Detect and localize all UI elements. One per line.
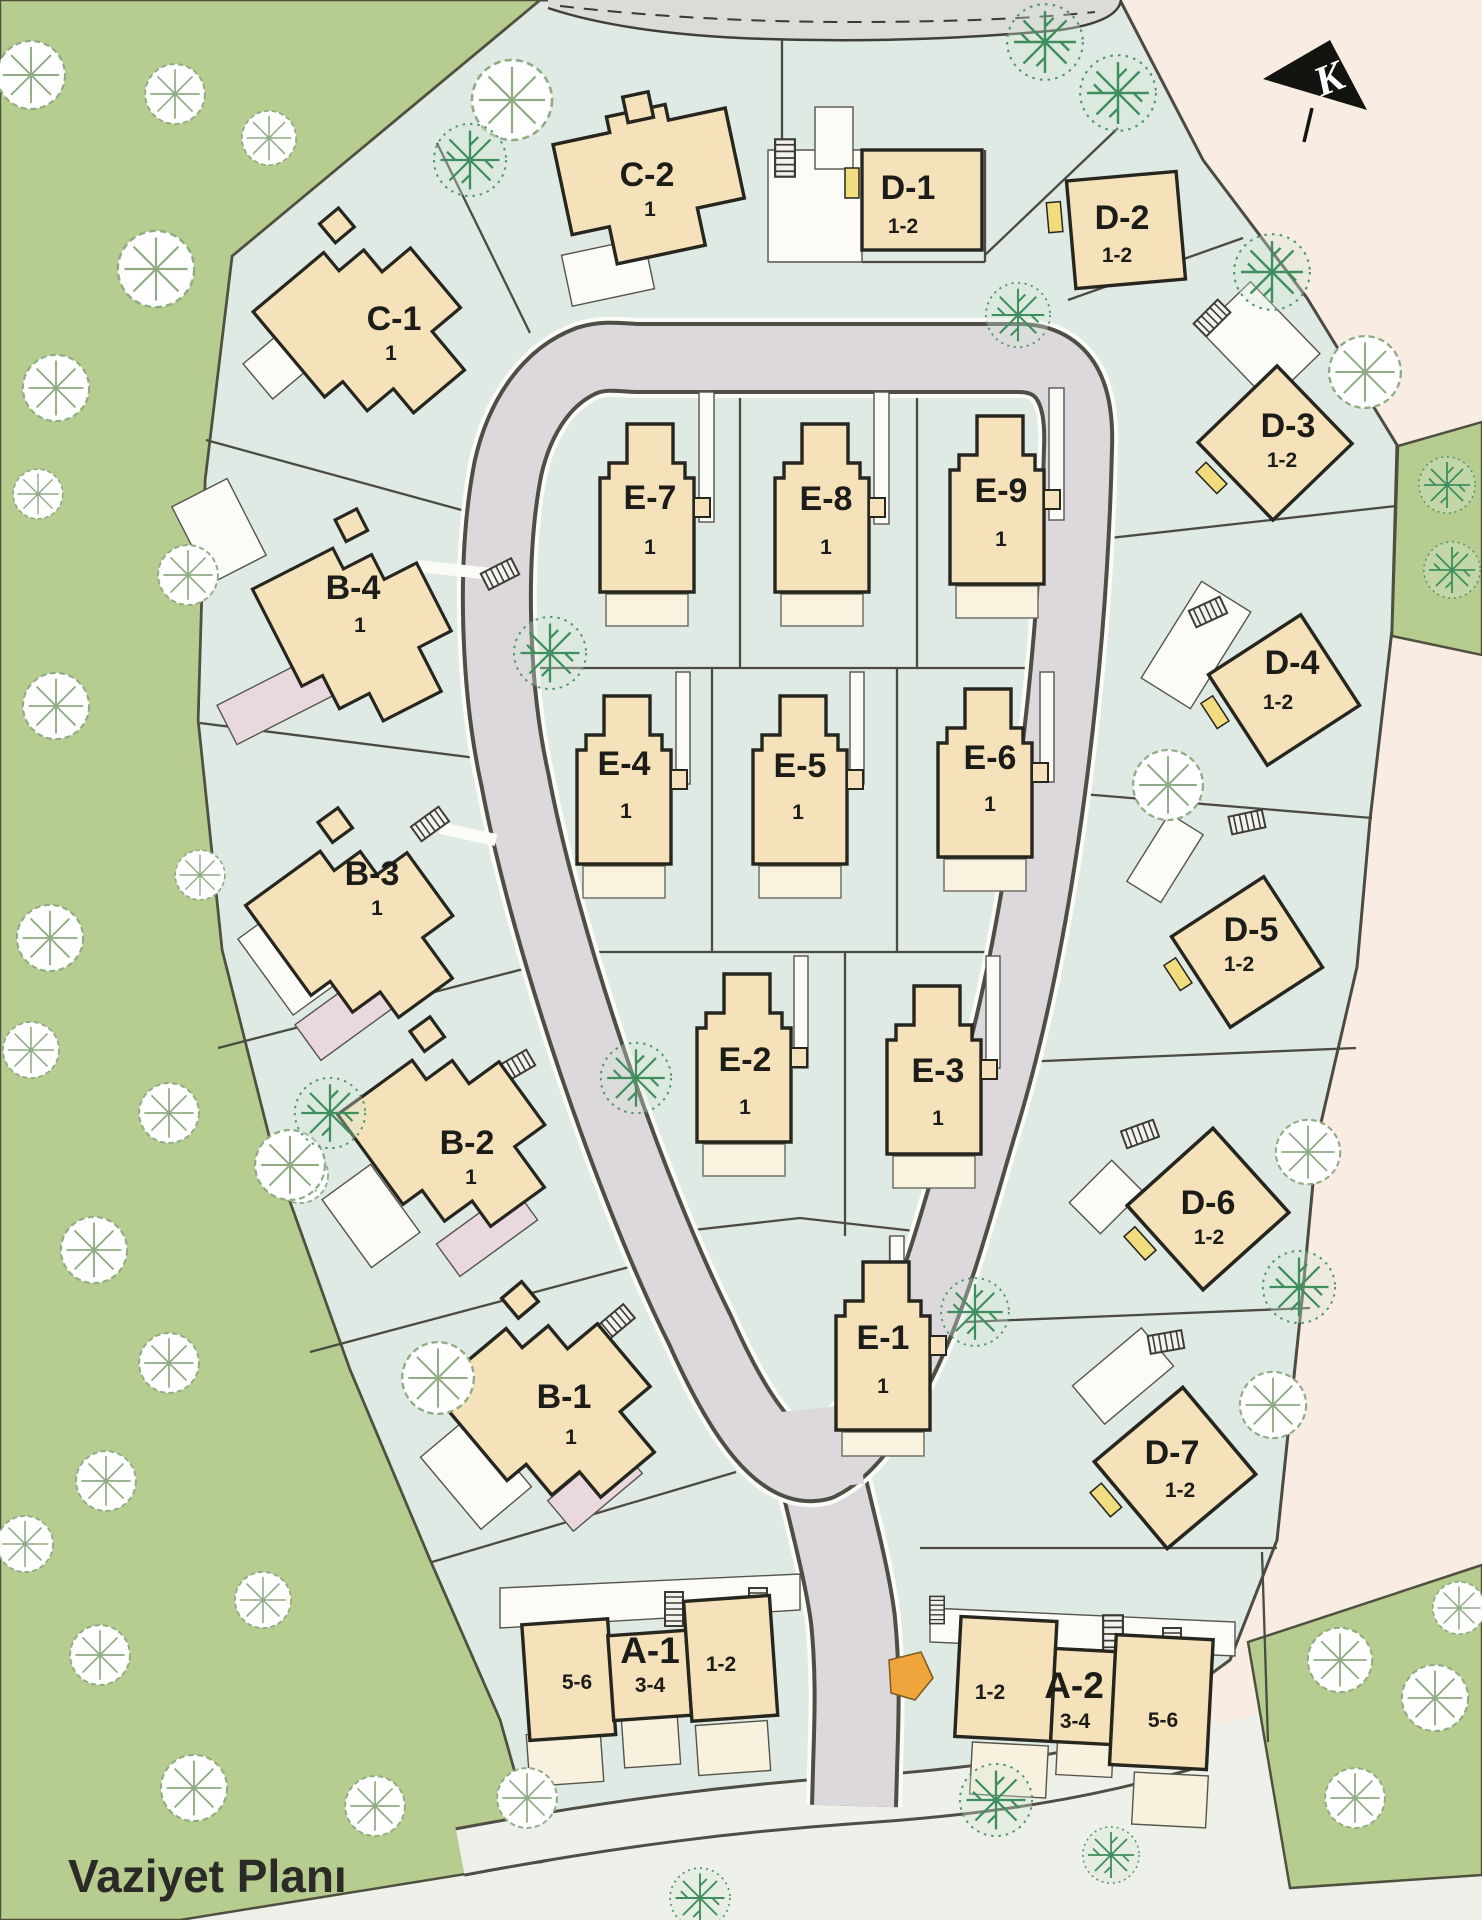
label-b3: B-3: [345, 855, 400, 893]
tree-icon: [3, 1022, 59, 1078]
tree-icon: [1424, 542, 1480, 598]
tree-icon: [1083, 1827, 1139, 1883]
garage-d1: [815, 107, 853, 169]
tree-icon: [145, 64, 205, 124]
unit-c1: 1: [385, 342, 397, 365]
unit-e5: 1: [792, 801, 804, 824]
tree-icon: [1263, 1251, 1335, 1323]
tree-icon: [1234, 234, 1310, 310]
label-e5: E-5: [774, 747, 827, 785]
tree-icon: [1308, 1628, 1372, 1692]
unit-d6: 1-2: [1194, 1226, 1224, 1249]
label-b1: B-1: [537, 1378, 592, 1416]
unit-e6: 1: [984, 793, 996, 816]
label-e1: E-1: [857, 1319, 910, 1357]
tree-icon: [601, 1043, 671, 1113]
label-d4: D-4: [1265, 644, 1320, 682]
label-a1: A-1: [620, 1630, 680, 1671]
tree-icon: [1276, 1120, 1340, 1184]
tree-icon: [1325, 1768, 1385, 1828]
unit-a1-right: 1-2: [706, 1653, 736, 1676]
label-e3: E-3: [912, 1052, 965, 1090]
tree-icon: [70, 1625, 130, 1685]
label-d5: D-5: [1224, 911, 1279, 949]
label-c2: C-2: [620, 156, 675, 194]
tree-icon: [1240, 1372, 1306, 1438]
unit-a2-right: 5-6: [1148, 1709, 1178, 1732]
unit-e2: 1: [739, 1096, 751, 1119]
tree-icon: [1402, 1665, 1468, 1731]
unit-e9: 1: [995, 528, 1007, 551]
unit-d3: 1-2: [1267, 449, 1297, 472]
park-right-small: [1392, 422, 1482, 655]
label-e9: E-9: [975, 472, 1028, 510]
unit-b2: 1: [465, 1166, 477, 1189]
tree-icon: [345, 1776, 405, 1836]
tree-icon: [1080, 55, 1156, 131]
stairs-icon: [930, 1596, 944, 1623]
label-d1: D-1: [881, 169, 936, 207]
unit-a1-left: 5-6: [562, 1671, 592, 1694]
unit-e7: 1: [644, 536, 656, 559]
unit-d7: 1-2: [1165, 1479, 1195, 1502]
unit-a2-mid: 3-4: [1060, 1710, 1091, 1733]
label-e8: E-8: [800, 480, 853, 518]
label-a2: A-2: [1044, 1665, 1104, 1706]
stairs-icon: [665, 1592, 683, 1626]
stem-road: [820, 1468, 857, 1806]
unit-d2: 1-2: [1102, 244, 1132, 267]
tree-icon: [175, 850, 225, 900]
label-d7: D-7: [1145, 1434, 1200, 1472]
label-e2: E-2: [719, 1041, 772, 1079]
tree-icon: [1329, 336, 1401, 408]
tree-icon: [1007, 4, 1083, 80]
unit-d4: 1-2: [1263, 691, 1293, 714]
site-plan-page: C-1 1 C-2 1 B-4 1 B-3 1 B-2 1 B-1 1 D-1 …: [0, 0, 1482, 1920]
site-plan-drawing: C-1 1 C-2 1 B-4 1 B-3 1 B-2 1 B-1 1 D-1 …: [0, 0, 1482, 1920]
unit-d5: 1-2: [1224, 953, 1254, 976]
label-c1: C-1: [367, 300, 422, 338]
tree-icon: [23, 355, 89, 421]
tree-icon: [242, 111, 296, 165]
stairs-icon: [775, 139, 795, 176]
tree-icon: [139, 1083, 199, 1143]
tree-icon: [514, 617, 586, 689]
label-e6: E-6: [964, 739, 1017, 777]
label-d6: D-6: [1181, 1184, 1236, 1222]
tree-icon: [235, 1572, 291, 1628]
tree-icon: [118, 231, 194, 307]
tree-icon: [0, 41, 65, 109]
tree-icon: [61, 1217, 127, 1283]
unit-e1: 1: [877, 1375, 889, 1398]
tree-icon: [13, 469, 63, 519]
unit-e8: 1: [820, 536, 832, 559]
unit-b4: 1: [354, 614, 366, 637]
page-title: Vaziyet Planı: [68, 1850, 347, 1902]
unit-b1: 1: [565, 1426, 577, 1449]
tree-icon: [1419, 457, 1475, 513]
tree-icon: [139, 1333, 199, 1393]
label-d2: D-2: [1095, 199, 1150, 237]
label-d3: D-3: [1261, 407, 1316, 445]
label-e7: E-7: [624, 479, 677, 517]
label-b4: B-4: [326, 569, 381, 607]
tree-icon: [402, 1342, 474, 1414]
tree-icon: [497, 1768, 557, 1828]
tree-icon: [986, 283, 1050, 347]
tree-icon: [23, 673, 89, 739]
tree-icon: [960, 1764, 1032, 1836]
unit-b3: 1: [371, 897, 383, 920]
label-b2: B-2: [440, 1124, 495, 1162]
unit-a1-mid: 3-4: [635, 1674, 666, 1697]
unit-a2-left: 1-2: [975, 1681, 1005, 1704]
tree-icon: [941, 1278, 1009, 1346]
unit-c2: 1: [644, 198, 656, 221]
unit-e4: 1: [620, 800, 632, 823]
unit-e3: 1: [932, 1107, 944, 1130]
tree-icon: [17, 905, 83, 971]
unit-d1: 1-2: [888, 215, 918, 238]
tree-icon: [161, 1755, 227, 1821]
tree-icon: [295, 1078, 365, 1148]
tree-icon: [76, 1451, 136, 1511]
label-e4: E-4: [598, 745, 651, 783]
tree-icon: [158, 545, 218, 605]
tree-icon: [434, 124, 506, 196]
tree-icon: [1133, 750, 1203, 820]
